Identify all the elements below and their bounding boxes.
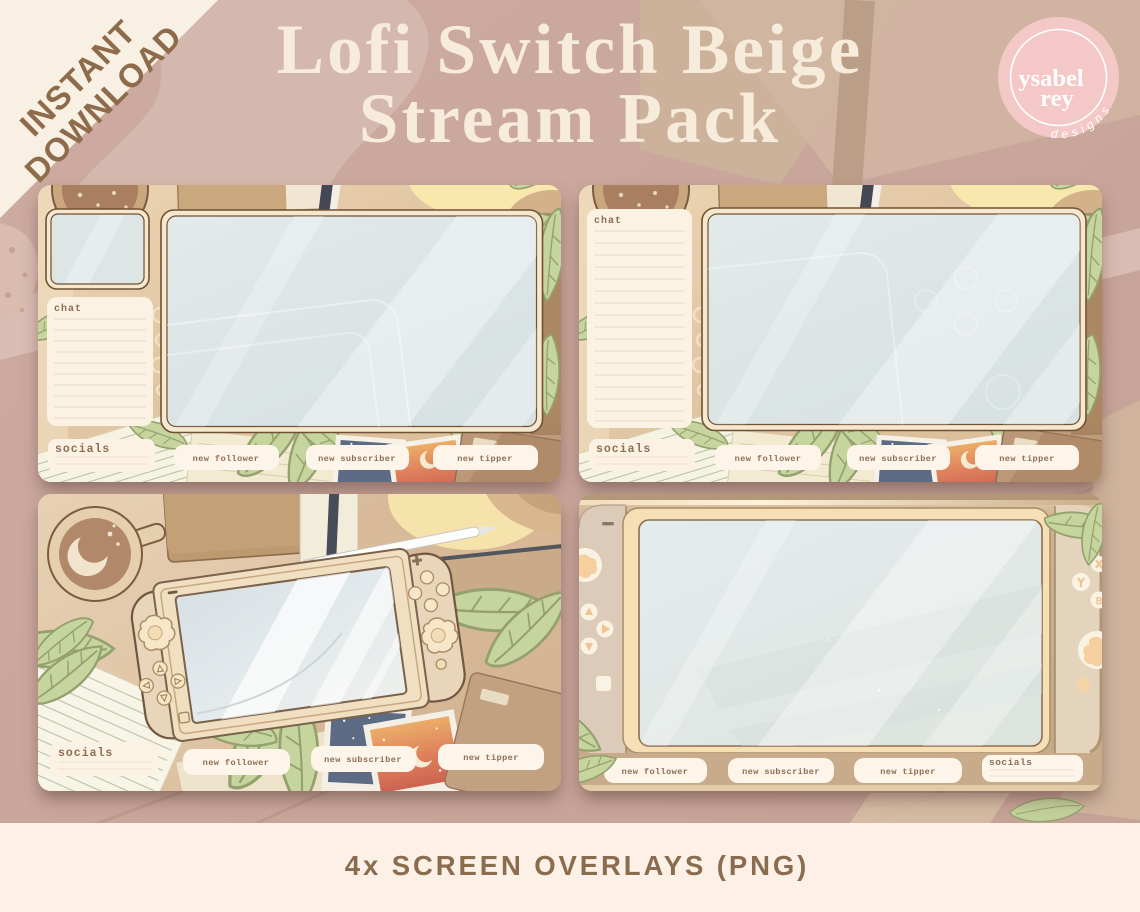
svg-text:new subscriber: new subscriber — [318, 454, 396, 464]
svg-text:socials: socials — [989, 757, 1032, 768]
svg-text:new tipper: new tipper — [999, 454, 1055, 464]
svg-text:socials: socials — [596, 443, 651, 456]
svg-text:new tipper: new tipper — [880, 767, 936, 777]
svg-text:new follower: new follower — [193, 454, 260, 464]
svg-text:B: B — [1096, 597, 1102, 609]
svg-text:new follower: new follower — [203, 758, 270, 768]
svg-text:new tipper: new tipper — [463, 753, 519, 763]
svg-text:new follower: new follower — [735, 454, 802, 464]
svg-text:chat: chat — [594, 215, 622, 227]
svg-text:socials: socials — [55, 443, 110, 456]
svg-text:new subscriber: new subscriber — [742, 767, 820, 777]
svg-text:socials: socials — [58, 747, 113, 760]
svg-text:new subscriber: new subscriber — [324, 755, 402, 765]
svg-text:new subscriber: new subscriber — [859, 454, 937, 464]
svg-text:new follower: new follower — [622, 767, 689, 777]
svg-text:chat: chat — [54, 303, 82, 315]
svg-text:new tipper: new tipper — [457, 454, 513, 464]
